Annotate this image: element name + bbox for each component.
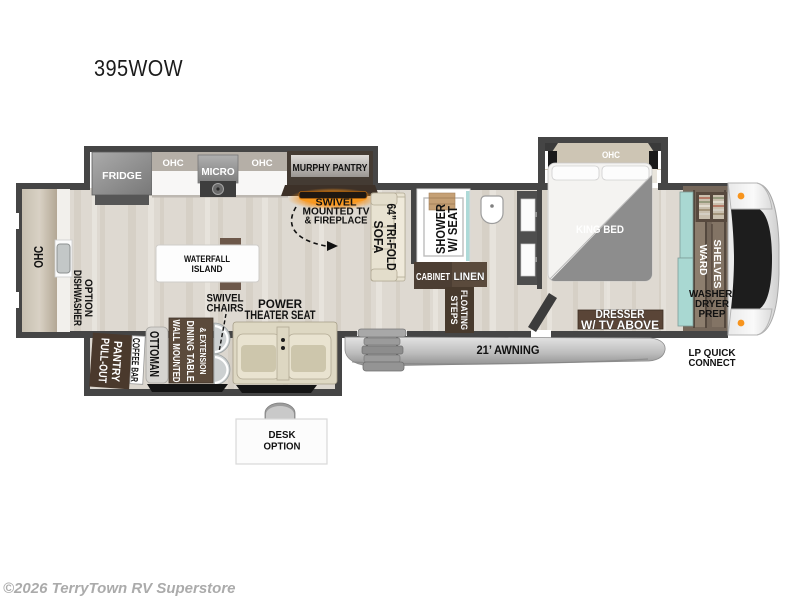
- svg-text:PREP: PREP: [699, 308, 726, 320]
- svg-text:CHAIRS: CHAIRS: [207, 303, 244, 315]
- svg-text:OHC: OHC: [162, 158, 183, 169]
- svg-text:STEPS: STEPS: [448, 296, 459, 325]
- svg-text:OHC: OHC: [32, 246, 46, 268]
- svg-text:OPTION: OPTION: [264, 441, 301, 453]
- svg-text:KING BED: KING BED: [576, 224, 624, 236]
- svg-text:DISHWASHER: DISHWASHER: [71, 270, 83, 326]
- svg-text:THEATER SEAT: THEATER SEAT: [245, 310, 316, 322]
- svg-text:SOFA: SOFA: [371, 221, 385, 254]
- svg-text:W/ SEAT: W/ SEAT: [445, 206, 460, 252]
- svg-text:CABINET: CABINET: [416, 272, 450, 283]
- svg-text:LINEN: LINEN: [454, 271, 485, 283]
- svg-text:WALL MOUNTED: WALL MOUNTED: [170, 320, 182, 383]
- svg-text:64” TRI-FOLD: 64” TRI-FOLD: [384, 204, 398, 271]
- svg-text:SHELVES: SHELVES: [711, 240, 723, 289]
- svg-text:OTTOMAN: OTTOMAN: [147, 331, 161, 377]
- svg-text:COFFEE BAR: COFFEE BAR: [128, 338, 141, 383]
- svg-text:DESK: DESK: [269, 429, 296, 441]
- svg-text:395WOW: 395WOW: [94, 55, 183, 81]
- svg-text:& EXTENSION: & EXTENSION: [198, 328, 207, 375]
- svg-text:MURPHY PANTRY: MURPHY PANTRY: [293, 162, 368, 174]
- svg-text:OPTION: OPTION: [82, 279, 94, 317]
- svg-text:MICRO: MICRO: [201, 167, 235, 178]
- svg-text:& FIREPLACE: & FIREPLACE: [305, 215, 368, 227]
- svg-text:FRIDGE: FRIDGE: [102, 170, 142, 182]
- svg-text:CONNECT: CONNECT: [689, 357, 737, 369]
- svg-text:OHC: OHC: [602, 150, 620, 161]
- svg-text:W/ TV ABOVE: W/ TV ABOVE: [581, 320, 659, 332]
- svg-text:©2026 TerryTown RV Superstore: ©2026 TerryTown RV Superstore: [3, 580, 236, 597]
- svg-text:21’ AWNING: 21’ AWNING: [477, 343, 540, 357]
- svg-text:WARD: WARD: [697, 245, 709, 276]
- svg-text:DINING TABLE: DINING TABLE: [184, 321, 196, 382]
- svg-text:ISLAND: ISLAND: [192, 264, 223, 275]
- svg-text:OHC: OHC: [251, 158, 272, 169]
